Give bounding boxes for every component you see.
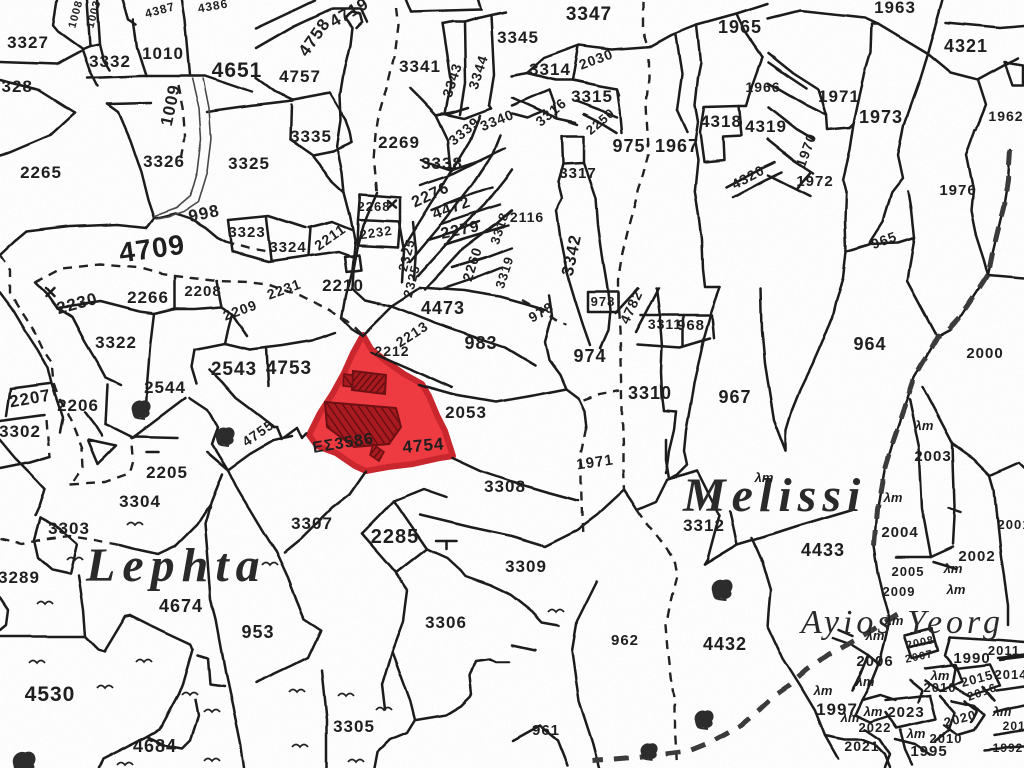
svg-text:3306: 3306 (425, 613, 467, 632)
svg-text:λm: λm (865, 628, 885, 643)
svg-text:3314: 3314 (529, 60, 571, 79)
svg-text:4757: 4757 (279, 67, 321, 86)
svg-text:4321: 4321 (944, 36, 988, 56)
svg-text:967: 967 (718, 387, 751, 407)
svg-text:3326: 3326 (143, 152, 185, 171)
svg-text:4319: 4319 (745, 117, 787, 136)
svg-text:2005: 2005 (892, 564, 925, 579)
svg-text:3335: 3335 (290, 127, 332, 146)
svg-text:3345: 3345 (497, 28, 539, 47)
svg-text:2116: 2116 (510, 209, 544, 225)
svg-text:1990: 1990 (953, 650, 990, 667)
svg-text:4684: 4684 (133, 736, 177, 756)
svg-text:2021: 2021 (844, 738, 879, 754)
svg-text:2003: 2003 (914, 448, 951, 465)
svg-text:978: 978 (591, 294, 616, 309)
svg-text:974: 974 (573, 346, 606, 366)
svg-text:λm: λm (855, 674, 875, 689)
svg-text:4674: 4674 (159, 596, 203, 616)
svg-text:λm: λm (946, 582, 966, 597)
svg-text:Lephta: Lephta (85, 539, 267, 592)
svg-text:3310: 3310 (628, 383, 672, 403)
svg-text:λm: λm (906, 726, 926, 741)
svg-text:4433: 4433 (801, 540, 845, 560)
svg-text:2285: 2285 (371, 526, 420, 548)
svg-text:1973: 1973 (859, 107, 903, 127)
svg-text:1971: 1971 (818, 87, 860, 106)
svg-text:962: 962 (611, 632, 639, 649)
svg-text:4753: 4753 (266, 358, 312, 379)
svg-text:Melissi: Melissi (682, 469, 866, 522)
svg-text:4432: 4432 (703, 634, 747, 654)
svg-text:2205: 2205 (146, 463, 188, 482)
svg-text:2265: 2265 (20, 163, 62, 182)
svg-text:3332: 3332 (89, 52, 131, 71)
svg-text:1965: 1965 (718, 17, 762, 37)
svg-text:3322: 3322 (95, 333, 137, 352)
svg-text:2269: 2269 (378, 133, 420, 152)
svg-text:1972: 1972 (796, 173, 833, 190)
svg-text:3312: 3312 (683, 516, 725, 535)
svg-text:4530: 4530 (25, 683, 76, 706)
svg-text:2000: 2000 (966, 345, 1003, 362)
svg-text:3304: 3304 (119, 492, 161, 511)
svg-text:4651: 4651 (212, 59, 263, 82)
svg-text:1962: 1962 (988, 108, 1023, 124)
svg-text:λm: λm (992, 704, 1012, 719)
svg-text:1992: 1992 (993, 741, 1024, 755)
svg-text:4473: 4473 (421, 298, 465, 318)
svg-text:λm: λm (813, 683, 833, 698)
svg-text:λm: λm (754, 470, 774, 485)
svg-text:λm: λm (943, 561, 963, 576)
svg-text:2014: 2014 (995, 667, 1024, 682)
svg-text:1995: 1995 (910, 743, 947, 760)
svg-text:3309: 3309 (505, 557, 547, 576)
svg-text:2268: 2268 (358, 199, 391, 214)
svg-text:2002: 2002 (958, 548, 995, 565)
svg-text:1976: 1976 (939, 182, 976, 199)
svg-text:3341: 3341 (399, 57, 441, 76)
svg-text:3347: 3347 (566, 4, 612, 25)
svg-text:1967: 1967 (655, 136, 699, 156)
svg-text:3317: 3317 (559, 165, 596, 182)
svg-text:2001: 2001 (998, 517, 1024, 532)
svg-text:3328: 3328 (0, 77, 33, 96)
svg-text:2011: 2011 (988, 643, 1020, 658)
svg-text:1966: 1966 (745, 79, 780, 95)
svg-text:2013: 2013 (1003, 719, 1024, 733)
svg-text:2023: 2023 (887, 704, 924, 721)
svg-text:3302: 3302 (0, 422, 41, 441)
svg-text:3308: 3308 (484, 477, 526, 496)
svg-text:λm: λm (883, 490, 903, 505)
svg-text:3307: 3307 (291, 514, 333, 533)
svg-text:3315: 3315 (571, 87, 613, 106)
svg-text:2208: 2208 (184, 283, 221, 300)
svg-text:λm: λm (930, 668, 950, 683)
svg-text:λm: λm (884, 613, 904, 628)
svg-text:2206: 2206 (57, 396, 99, 415)
svg-text:3289: 3289 (0, 568, 40, 587)
svg-text:3305: 3305 (333, 717, 375, 736)
svg-text:2266: 2266 (127, 288, 169, 307)
svg-text:2006: 2006 (856, 653, 893, 670)
svg-text:953: 953 (241, 622, 274, 642)
svg-text:975: 975 (612, 136, 645, 156)
svg-text:λm: λm (840, 710, 860, 725)
svg-text:2009: 2009 (883, 584, 916, 599)
svg-text:λm: λm (914, 418, 934, 433)
svg-text:2543: 2543 (211, 359, 257, 380)
svg-text:968: 968 (677, 317, 705, 334)
svg-text:2210: 2210 (322, 276, 364, 295)
svg-text:1963: 1963 (874, 0, 916, 17)
svg-text:2004: 2004 (881, 524, 918, 541)
svg-text:1010: 1010 (142, 44, 184, 63)
svg-text:964: 964 (853, 334, 886, 354)
svg-text:2544: 2544 (144, 378, 186, 397)
svg-text:2022: 2022 (859, 720, 892, 735)
svg-text:2053: 2053 (445, 403, 487, 422)
svg-text:961: 961 (532, 722, 560, 739)
svg-text:983: 983 (464, 333, 497, 353)
svg-text:3327: 3327 (7, 33, 49, 52)
svg-text:3323: 3323 (228, 224, 265, 241)
svg-text:4754: 4754 (402, 434, 445, 457)
svg-text:3324: 3324 (269, 239, 306, 256)
svg-text:3325: 3325 (228, 154, 270, 173)
svg-text:3303: 3303 (48, 519, 90, 538)
svg-text:λm: λm (863, 704, 883, 719)
svg-text:4318: 4318 (700, 112, 742, 131)
svg-text:3338: 3338 (421, 154, 463, 173)
